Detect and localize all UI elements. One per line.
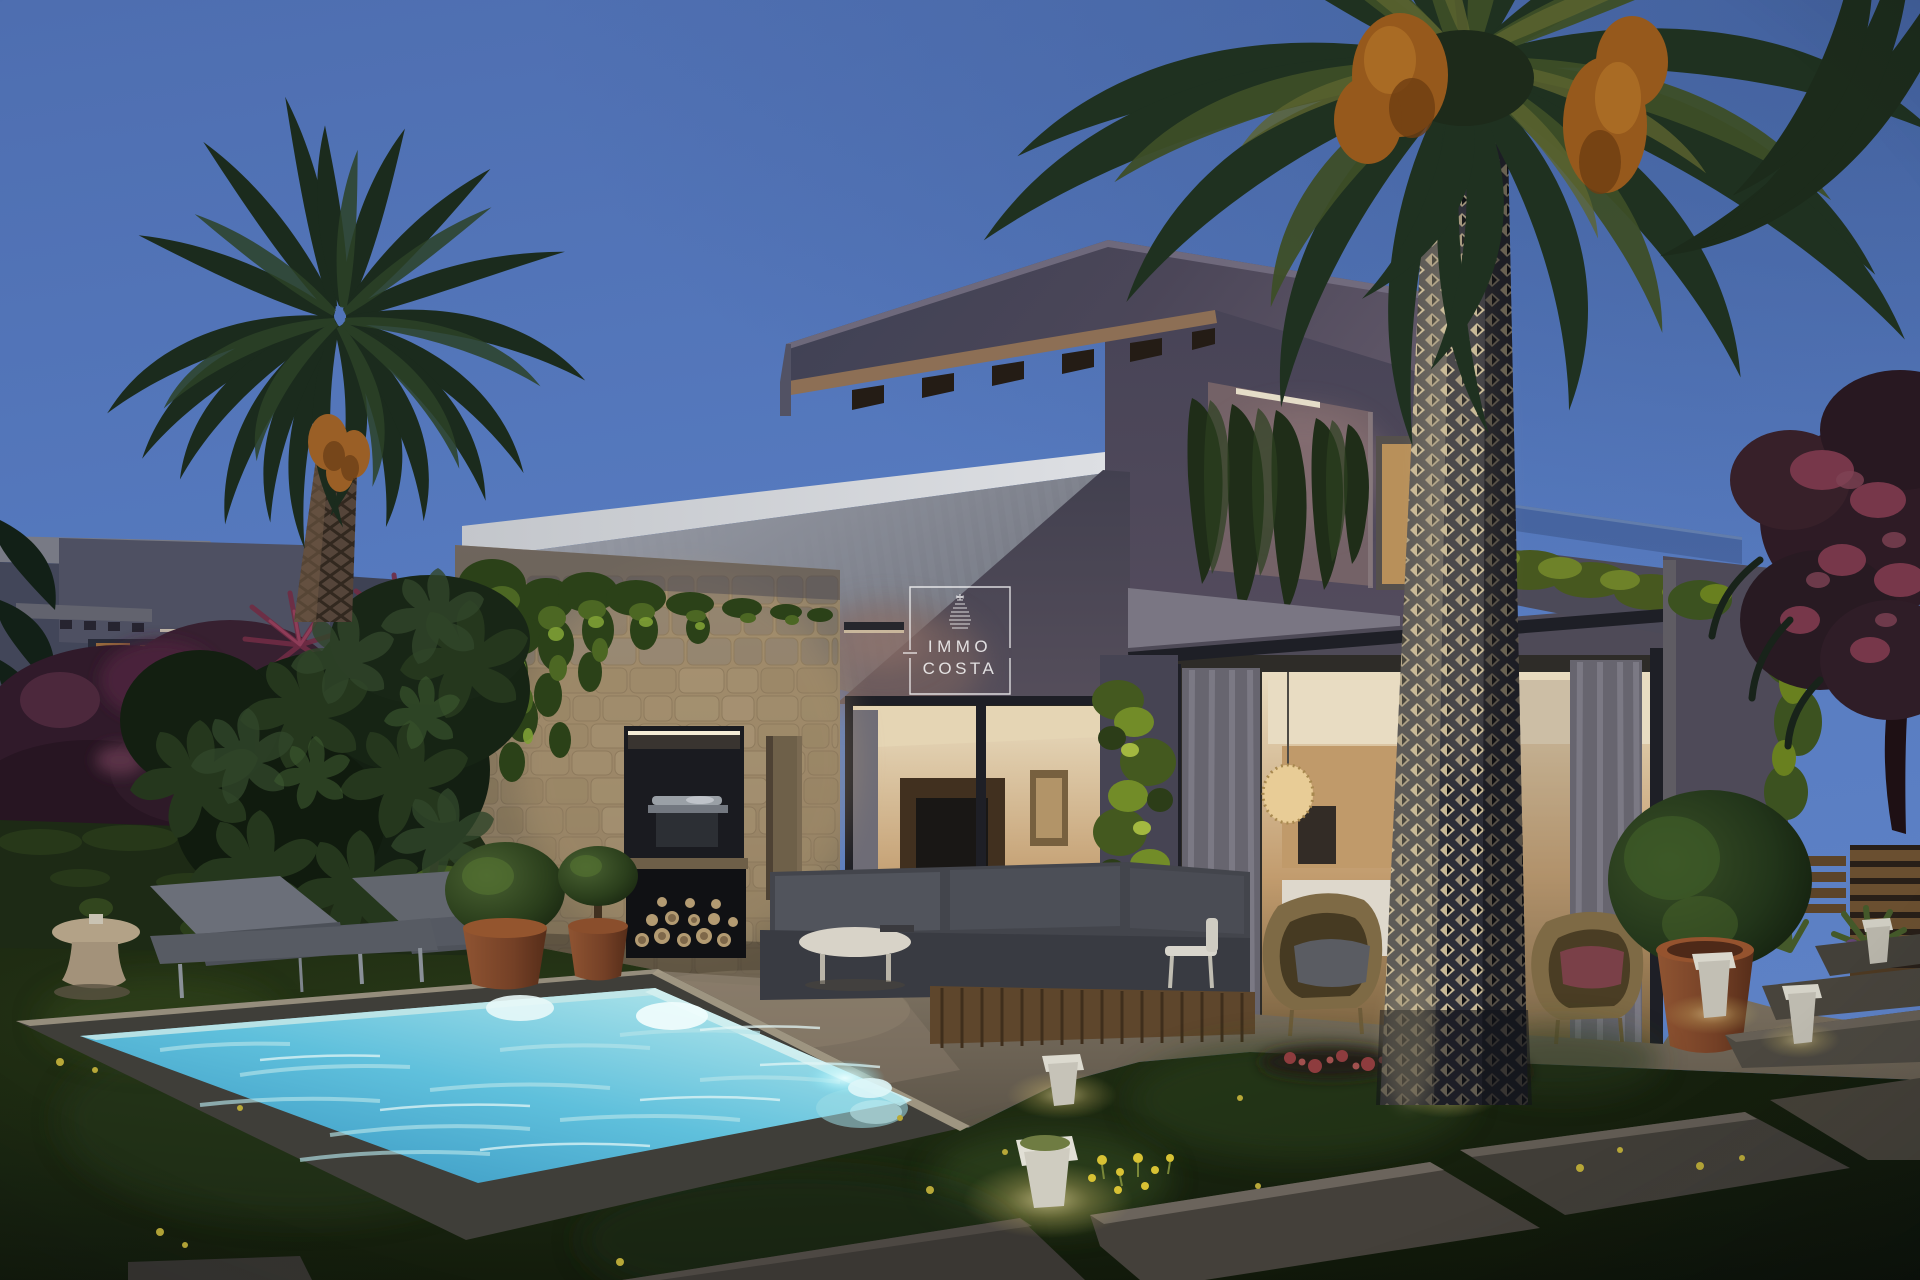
svg-text:COSTA: COSTA [923,659,998,678]
svg-text:IMMO: IMMO [928,637,992,656]
